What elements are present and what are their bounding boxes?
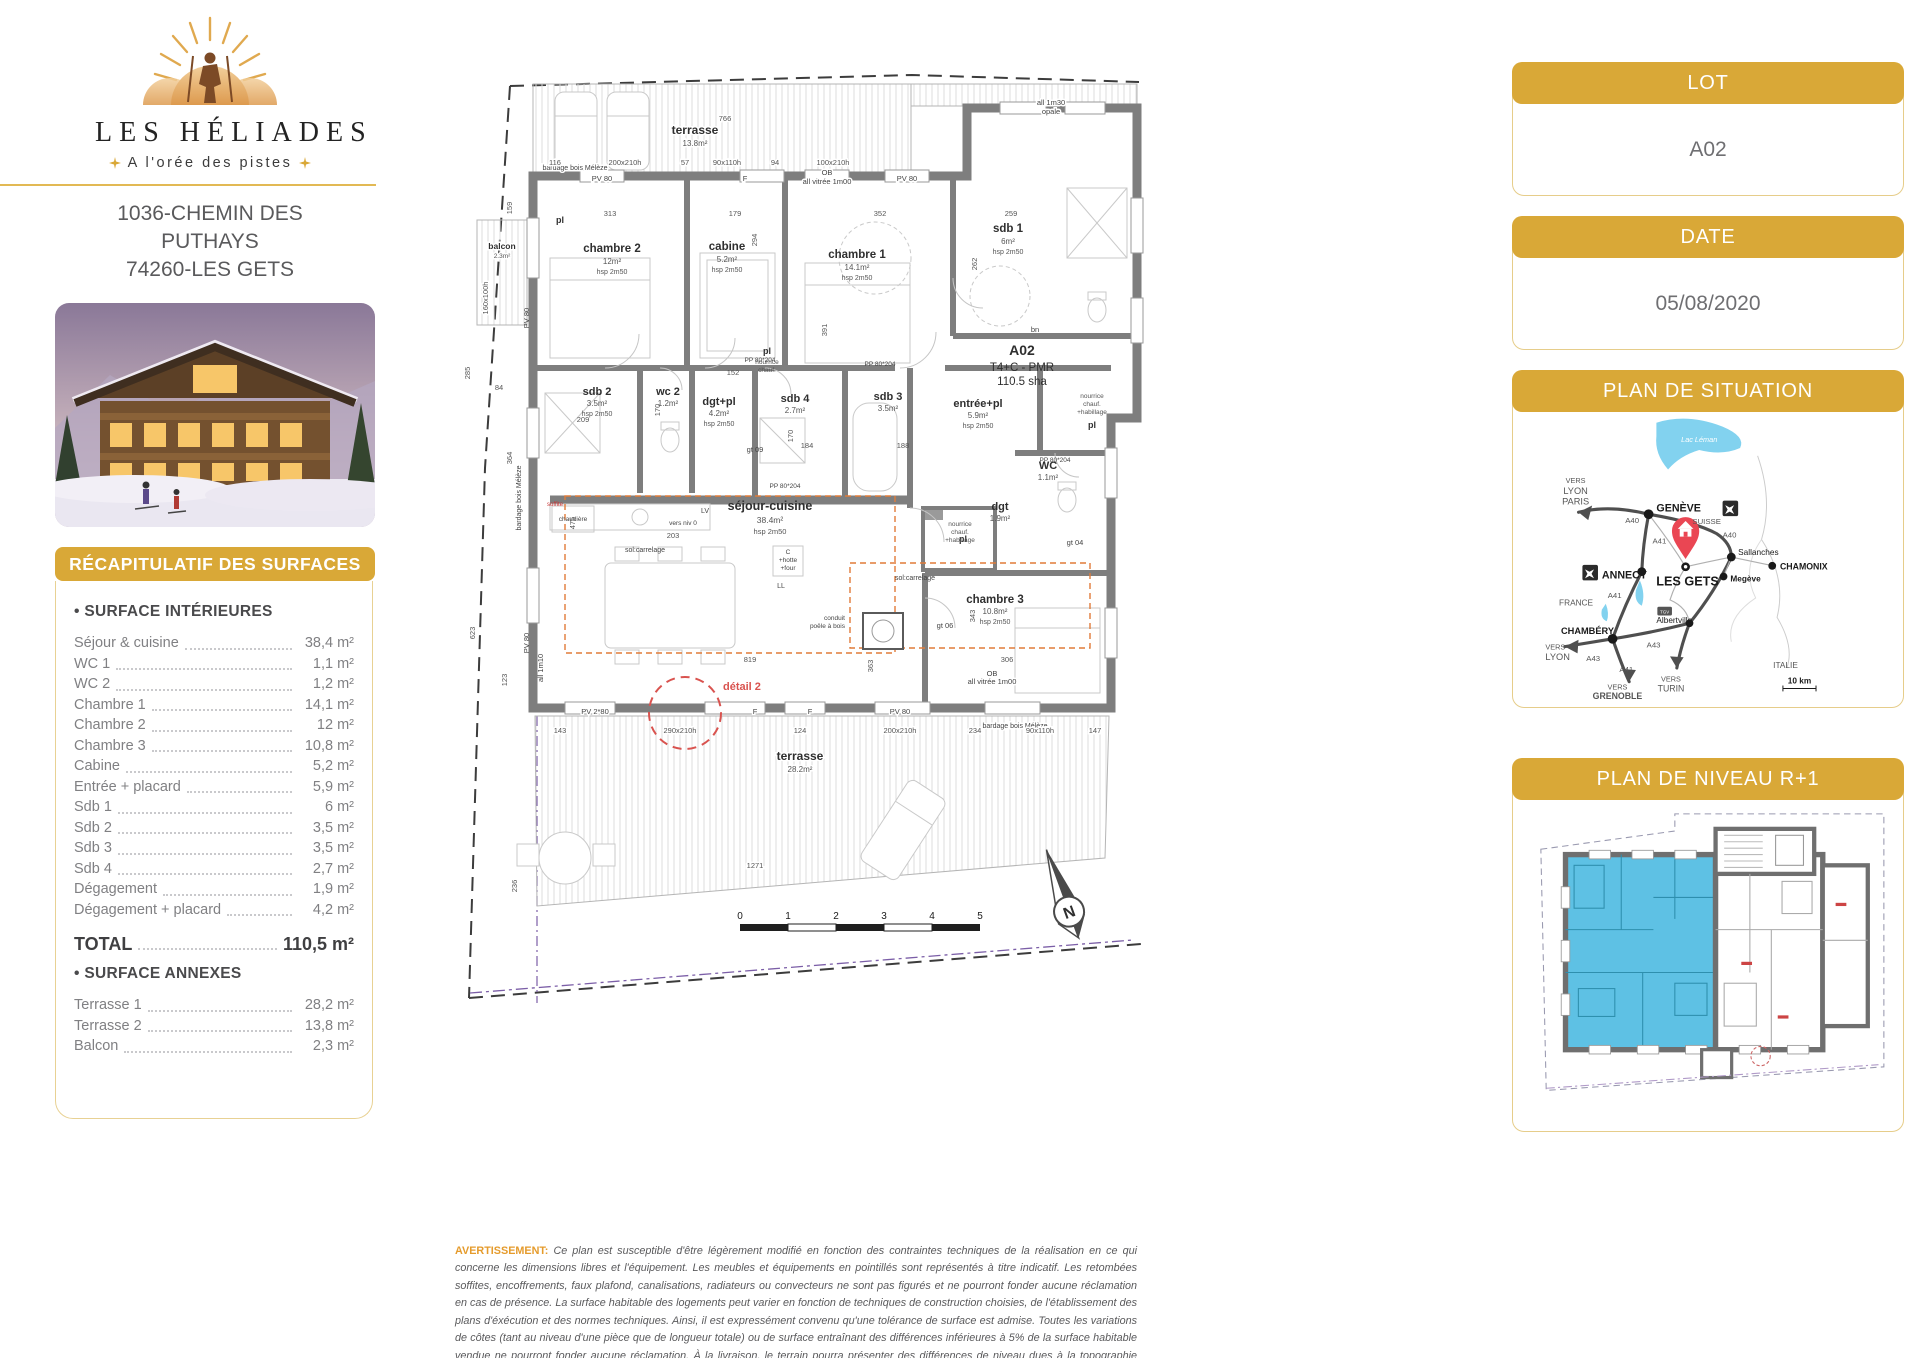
svg-text:1: 1 bbox=[785, 911, 791, 922]
svg-text:766: 766 bbox=[719, 114, 732, 123]
svg-text:F: F bbox=[753, 707, 758, 716]
terrace-bottom-area bbox=[535, 716, 1109, 906]
disclaimer-text: Ce plan est susceptible d'être légèremen… bbox=[455, 1245, 1137, 1358]
svg-text:352: 352 bbox=[874, 209, 887, 218]
svg-text:1271: 1271 bbox=[747, 861, 764, 870]
svg-text:sol:carrelage: sol:carrelage bbox=[625, 547, 665, 554]
svg-text:819: 819 bbox=[744, 655, 757, 664]
highlighted-unit bbox=[1566, 855, 1716, 1050]
svg-text:143: 143 bbox=[554, 726, 567, 735]
plan-sheet: LES HÉLIADES A l'orée des pistes 1036-CH… bbox=[0, 0, 1920, 1358]
room-label-dgtpl: dgt+pl bbox=[702, 396, 735, 408]
les-gets-label: LES GETS bbox=[1656, 574, 1719, 588]
svg-text:262: 262 bbox=[970, 258, 979, 271]
table-row: Sdb 23,5 m² bbox=[74, 818, 354, 839]
disclaimer: AVERTISSEMENT: Ce plan est susceptible d… bbox=[455, 1243, 1137, 1358]
svg-text:100x210h: 100x210h bbox=[817, 158, 850, 167]
svg-text:84: 84 bbox=[495, 383, 503, 392]
svg-text:SUISSE: SUISSE bbox=[1692, 517, 1720, 526]
disclaimer-label: AVERTISSEMENT: bbox=[455, 1245, 548, 1257]
svg-text:ITALIE: ITALIE bbox=[1773, 661, 1798, 670]
svg-text:A41: A41 bbox=[1652, 536, 1666, 545]
niveau-header: PLAN DE NIVEAU R+1 bbox=[1512, 758, 1904, 800]
unit-area: 110.5 sha bbox=[997, 376, 1047, 388]
svg-text:CHAMONIX: CHAMONIX bbox=[1780, 562, 1828, 572]
svg-text:CHAMBÉRY: CHAMBÉRY bbox=[1561, 626, 1615, 636]
svg-text:Albertville: Albertville bbox=[1656, 616, 1692, 625]
svg-text:Megève: Megève bbox=[1730, 574, 1761, 583]
svg-text:+habillage: +habillage bbox=[1077, 409, 1107, 416]
room-label-sejour: séjour-cuisine bbox=[728, 499, 813, 513]
svg-text:hsp 2m50: hsp 2m50 bbox=[963, 423, 994, 430]
situation-map: Lac Léman bbox=[1513, 413, 1901, 705]
svg-text:soffite: soffite bbox=[547, 502, 564, 508]
svg-text:pl: pl bbox=[1088, 420, 1096, 430]
svg-text:hsp 2m50: hsp 2m50 bbox=[754, 527, 787, 536]
room-label-dgt: dgt bbox=[991, 501, 1008, 513]
svg-text:236: 236 bbox=[510, 880, 519, 893]
date-box: DATE 05/08/2020 bbox=[1512, 216, 1904, 350]
svg-text:hsp 2m50: hsp 2m50 bbox=[712, 267, 743, 274]
brand-name: LES HÉLIADES bbox=[95, 117, 325, 149]
svg-text:57: 57 bbox=[681, 158, 689, 167]
svg-text:LL: LL bbox=[777, 583, 785, 590]
table-row: Entrée + placard5,9 m² bbox=[74, 777, 354, 798]
niveau-box: PLAN DE NIVEAU R+1 bbox=[1512, 758, 1904, 1132]
table-row: Séjour & cuisine38,4 m² bbox=[74, 633, 354, 654]
svg-text:poêle à bois: poêle à bois bbox=[810, 623, 846, 630]
stove bbox=[863, 613, 903, 649]
svg-text:184: 184 bbox=[801, 441, 814, 450]
svg-text:gt 09: gt 09 bbox=[747, 445, 764, 454]
svg-text:VERS: VERS bbox=[1661, 675, 1681, 684]
svg-text:3: 3 bbox=[881, 911, 887, 922]
svg-text:opale: opale bbox=[1042, 107, 1060, 116]
situation-box: PLAN DE SITUATION Lac Léman bbox=[1512, 370, 1904, 708]
svg-text:hsp 2m50: hsp 2m50 bbox=[597, 269, 628, 276]
svg-text:160x100h: 160x100h bbox=[481, 282, 490, 315]
svg-text:123: 123 bbox=[500, 674, 509, 687]
svg-text:VERS: VERS bbox=[1566, 476, 1586, 485]
svg-text:12m²: 12m² bbox=[603, 257, 622, 266]
table-row: Balcon2,3 m² bbox=[74, 1036, 354, 1057]
svg-text:3.5m²: 3.5m² bbox=[587, 399, 608, 408]
svg-text:PP 80*204: PP 80*204 bbox=[745, 357, 776, 364]
svg-text:209: 209 bbox=[577, 415, 590, 424]
table-row: WC 21,2 m² bbox=[74, 674, 354, 695]
situation-header: PLAN DE SITUATION bbox=[1512, 370, 1904, 412]
room-label-wc2: wc 2 bbox=[655, 386, 680, 398]
svg-text:PV 80: PV 80 bbox=[522, 308, 531, 328]
svg-text:5.2m²: 5.2m² bbox=[717, 255, 738, 264]
svg-text:259: 259 bbox=[1005, 209, 1018, 218]
star-icon bbox=[109, 157, 121, 169]
svg-text:290x210h: 290x210h bbox=[664, 726, 697, 735]
room-label-sdb3: sdb 3 bbox=[874, 391, 903, 403]
road-arrows bbox=[1565, 505, 1684, 681]
svg-text:FRANCE: FRANCE bbox=[1559, 599, 1593, 608]
svg-text:TGV: TGV bbox=[1660, 610, 1669, 615]
date-header: DATE bbox=[1512, 216, 1904, 258]
svg-text:94: 94 bbox=[771, 158, 779, 167]
svg-text:13.8m²: 13.8m² bbox=[683, 139, 708, 148]
svg-text:A41: A41 bbox=[1619, 665, 1633, 674]
svg-text:170: 170 bbox=[786, 430, 795, 443]
svg-text:1.1m²: 1.1m² bbox=[1038, 473, 1059, 482]
svg-text:+hotte: +hotte bbox=[779, 557, 798, 564]
svg-text:2.7m²: 2.7m² bbox=[785, 406, 806, 415]
svg-text:188: 188 bbox=[897, 441, 910, 450]
lot-header: LOT bbox=[1512, 62, 1904, 104]
svg-text:313: 313 bbox=[604, 209, 617, 218]
table-row: Sdb 33,5 m² bbox=[74, 838, 354, 859]
annex-heading: • SURFACE ANNEXES bbox=[74, 965, 354, 983]
balcony-label: balcon bbox=[488, 241, 515, 251]
room-label-cabine: cabine bbox=[709, 241, 745, 253]
lot-value: A02 bbox=[1513, 105, 1903, 195]
building-other bbox=[1716, 855, 1823, 1050]
svg-text:116: 116 bbox=[549, 158, 561, 167]
svg-text:GENÈVE: GENÈVE bbox=[1656, 501, 1701, 514]
table-row: Dégagement1,9 m² bbox=[74, 879, 354, 900]
svg-text:chauf.: chauf. bbox=[758, 367, 776, 374]
svg-text:+habillage: +habillage bbox=[945, 537, 975, 544]
brand-logo: LES HÉLIADES A l'orée des pistes bbox=[95, 10, 325, 171]
table-row: Terrasse 128,2 m² bbox=[74, 995, 354, 1016]
svg-text:A40: A40 bbox=[1723, 531, 1737, 540]
svg-text:PV 80: PV 80 bbox=[897, 174, 917, 183]
map-scale-label: 10 km bbox=[1788, 677, 1811, 686]
svg-text:363: 363 bbox=[866, 660, 875, 673]
svg-text:all vitrée 1m00: all vitrée 1m00 bbox=[803, 177, 852, 186]
svg-text:PV 80: PV 80 bbox=[522, 633, 531, 653]
svg-text:90x110h: 90x110h bbox=[713, 158, 741, 167]
room-label-entree: entrée+pl bbox=[953, 398, 1002, 410]
svg-text:6m²: 6m² bbox=[1001, 237, 1015, 246]
interior-heading: • SURFACE INTÉRIEURES bbox=[74, 603, 354, 621]
svg-text:234: 234 bbox=[969, 726, 982, 735]
svg-text:4.2m²: 4.2m² bbox=[709, 409, 730, 418]
unit-code: A02 bbox=[1009, 342, 1035, 358]
svg-text:LV: LV bbox=[701, 508, 709, 515]
svg-text:PP 80*204: PP 80*204 bbox=[770, 483, 801, 490]
svg-text:F: F bbox=[808, 707, 813, 716]
svg-text:nourrice: nourrice bbox=[1080, 393, 1104, 400]
svg-text:pl: pl bbox=[556, 215, 564, 225]
svg-text:hsp 2m50: hsp 2m50 bbox=[842, 275, 873, 282]
svg-text:hsp 2m50: hsp 2m50 bbox=[980, 619, 1011, 626]
room-label-chambre1: chambre 1 bbox=[828, 249, 886, 261]
svg-text:vers niv 0: vers niv 0 bbox=[669, 520, 697, 527]
svg-text:203: 203 bbox=[667, 531, 680, 540]
unit-type: T4+C - PMR bbox=[990, 362, 1054, 374]
building-photo bbox=[55, 303, 375, 527]
lower-block bbox=[1702, 1050, 1732, 1078]
svg-text:90x110h: 90x110h bbox=[1026, 726, 1054, 735]
svg-text:all 1m10: all 1m10 bbox=[536, 654, 545, 682]
svg-text:2: 2 bbox=[833, 911, 839, 922]
svg-text:hsp 2m50: hsp 2m50 bbox=[704, 421, 735, 428]
svg-text:VERS: VERS bbox=[1545, 643, 1565, 652]
lot-box: LOT A02 bbox=[1512, 62, 1904, 196]
table-row: Cabine5,2 m² bbox=[74, 756, 354, 777]
svg-text:PARIS: PARIS bbox=[1562, 496, 1589, 506]
svg-text:PV 80: PV 80 bbox=[592, 174, 612, 183]
svg-text:A40: A40 bbox=[1625, 516, 1639, 525]
svg-text:hsp 2m50: hsp 2m50 bbox=[993, 249, 1024, 256]
svg-text:475: 475 bbox=[568, 517, 577, 530]
room-label-chambre3: chambre 3 bbox=[966, 594, 1024, 606]
room-label-sdb2: sdb 2 bbox=[583, 386, 612, 398]
level-plan bbox=[1513, 801, 1901, 1129]
svg-text:1.9m²: 1.9m² bbox=[990, 514, 1011, 523]
svg-text:GRENOBLE: GRENOBLE bbox=[1593, 691, 1643, 701]
surfaces-title: RÉCAPITULATIF DES SURFACES bbox=[55, 547, 375, 581]
divider bbox=[0, 184, 376, 186]
table-row: Dégagement + placard4,2 m² bbox=[74, 900, 354, 921]
svg-text:170: 170 bbox=[653, 404, 662, 417]
svg-text:Sallanches: Sallanches bbox=[1738, 548, 1778, 557]
svg-text:PP 80*204: PP 80*204 bbox=[1040, 457, 1071, 464]
svg-text:+four: +four bbox=[781, 565, 797, 572]
svg-text:343: 343 bbox=[968, 610, 977, 623]
svg-text:all 1m30: all 1m30 bbox=[1037, 98, 1065, 107]
star-icon bbox=[299, 157, 311, 169]
svg-text:bn: bn bbox=[1031, 325, 1039, 334]
svg-text:124: 124 bbox=[794, 726, 807, 735]
svg-text:PP 80*204: PP 80*204 bbox=[865, 361, 896, 368]
svg-text:14.1m²: 14.1m² bbox=[845, 263, 870, 272]
svg-text:200x210h: 200x210h bbox=[609, 158, 642, 167]
svg-text:5.9m²: 5.9m² bbox=[968, 411, 989, 420]
svg-text:chauf.: chauf. bbox=[1083, 401, 1101, 408]
svg-text:0: 0 bbox=[737, 911, 743, 922]
room-label-sdb1: sdb 1 bbox=[993, 223, 1024, 235]
scale-bar: 0 1 2 3 4 5 bbox=[737, 911, 983, 931]
terrace-bottom-label: terrasse bbox=[777, 749, 824, 763]
svg-text:147: 147 bbox=[1089, 726, 1102, 735]
svg-text:A43: A43 bbox=[1586, 654, 1600, 663]
svg-text:gt 06: gt 06 bbox=[937, 621, 954, 630]
table-row: Chambre 212 m² bbox=[74, 715, 354, 736]
svg-text:OB: OB bbox=[822, 168, 833, 177]
terrace-top-label: terrasse bbox=[672, 123, 719, 137]
total-row: TOTAL110,5 m² bbox=[74, 934, 354, 955]
svg-text:391: 391 bbox=[820, 324, 829, 337]
svg-text:4: 4 bbox=[929, 911, 935, 922]
svg-text:VERS: VERS bbox=[1608, 682, 1628, 691]
table-row: Sdb 16 m² bbox=[74, 797, 354, 818]
floor-plan: détail 2 chambre 2 12m² hsp 2m50 cabine … bbox=[455, 68, 1145, 1013]
svg-text:pl: pl bbox=[763, 346, 771, 356]
svg-text:200x210h: 200x210h bbox=[884, 726, 917, 735]
brand-tagline: A l'orée des pistes bbox=[95, 155, 325, 171]
svg-text:gt 04: gt 04 bbox=[1067, 538, 1084, 547]
table-row: Terrasse 213,8 m² bbox=[74, 1016, 354, 1037]
svg-text:28.2m²: 28.2m² bbox=[788, 765, 813, 774]
table-row: Chambre 310,8 m² bbox=[74, 736, 354, 757]
detail-label: détail 2 bbox=[723, 681, 761, 693]
svg-text:179: 179 bbox=[729, 209, 742, 218]
svg-text:3.5m²: 3.5m² bbox=[878, 404, 899, 413]
svg-text:294: 294 bbox=[750, 234, 759, 247]
svg-text:ANNECY: ANNECY bbox=[1602, 569, 1647, 581]
svg-text:chauf.: chauf. bbox=[951, 529, 969, 536]
svg-text:all vitrée 1m00: all vitrée 1m00 bbox=[968, 677, 1017, 686]
svg-text:364: 364 bbox=[505, 452, 514, 465]
svg-text:A41: A41 bbox=[1608, 591, 1622, 600]
svg-text:conduit: conduit bbox=[824, 615, 845, 622]
surfaces-panel: • SURFACE INTÉRIEURES Séjour & cuisine38… bbox=[55, 581, 373, 1119]
svg-text:152: 152 bbox=[727, 368, 740, 377]
tgv-icon: TGV bbox=[1657, 607, 1672, 616]
lake-label: Lac Léman bbox=[1681, 435, 1717, 444]
table-row: WC 11,1 m² bbox=[74, 654, 354, 675]
project-address: 1036-CHEMIN DES PUTHAYS 74260-LES GETS bbox=[30, 200, 390, 284]
date-value: 05/08/2020 bbox=[1513, 259, 1903, 349]
svg-text:nourrice: nourrice bbox=[948, 521, 972, 528]
svg-text:2.3m²: 2.3m² bbox=[494, 253, 511, 260]
svg-text:F: F bbox=[743, 174, 748, 183]
table-row: Chambre 114,1 m² bbox=[74, 695, 354, 716]
svg-text:PV 80: PV 80 bbox=[890, 707, 910, 716]
svg-text:LYON: LYON bbox=[1563, 486, 1587, 496]
svg-text:LYON: LYON bbox=[1545, 652, 1569, 662]
svg-text:sol:carrelage: sol:carrelage bbox=[895, 575, 935, 582]
svg-text:TURIN: TURIN bbox=[1658, 683, 1685, 693]
svg-text:10.8m²: 10.8m² bbox=[983, 607, 1008, 616]
table-row: Sdb 42,7 m² bbox=[74, 859, 354, 880]
room-label-sdb4: sdb 4 bbox=[781, 393, 811, 405]
room-label-chambre2: chambre 2 bbox=[583, 243, 641, 255]
limit-line bbox=[470, 940, 1133, 993]
svg-text:285: 285 bbox=[463, 367, 472, 380]
svg-text:PV 2*80: PV 2*80 bbox=[581, 707, 609, 716]
svg-text:38.4m²: 38.4m² bbox=[757, 515, 784, 525]
svg-text:bardage bois Mélèze: bardage bois Mélèze bbox=[516, 465, 523, 530]
sun-skier-icon bbox=[135, 10, 285, 110]
svg-text:A43: A43 bbox=[1647, 641, 1661, 650]
svg-text:5: 5 bbox=[977, 911, 983, 922]
svg-text:C: C bbox=[786, 549, 791, 556]
svg-text:623: 623 bbox=[468, 627, 477, 640]
svg-text:306: 306 bbox=[1001, 655, 1014, 664]
map-scale-bar bbox=[1783, 686, 1816, 692]
svg-text:159: 159 bbox=[505, 202, 514, 215]
